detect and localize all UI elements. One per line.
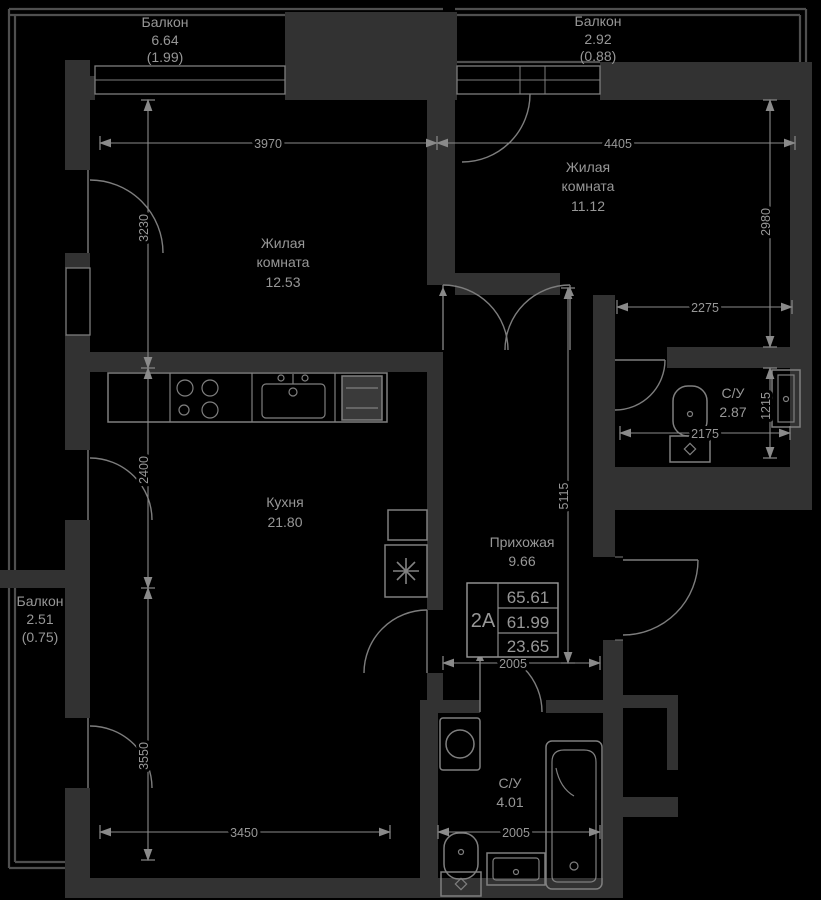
kitchen-sink-icon (262, 374, 325, 418)
svg-text:Кухня: Кухня (266, 494, 303, 510)
svg-text:Жилая: Жилая (261, 235, 305, 251)
dim-hall-width: 2005 (499, 657, 527, 671)
wall-segment (790, 62, 812, 510)
wall-segment (546, 700, 613, 713)
window-room1-left (66, 268, 90, 335)
svg-text:комната: комната (257, 254, 310, 270)
svg-text:Балкон: Балкон (575, 13, 622, 29)
label-room2: Жилая комната 11.12 (562, 159, 615, 214)
label-kitchen: Кухня 21.80 (266, 494, 303, 530)
svg-text:2.51: 2.51 (26, 611, 53, 627)
unit-stamp: 2А 65.61 61.99 23.65 (467, 583, 558, 657)
svg-text:комната: комната (562, 178, 615, 194)
dim-room2-ext-width: 2275 (691, 301, 719, 315)
floor-plan-canvas: 3970 4405 3230 2400 3550 2980 1215 2275 … (0, 0, 821, 900)
svg-text:21.80: 21.80 (267, 514, 302, 530)
total-area: 65.61 (507, 588, 550, 607)
wall-segment (623, 695, 678, 708)
stove-icon (177, 380, 218, 418)
dim-room2-height: 2980 (759, 208, 773, 236)
wall-segment (427, 96, 455, 285)
bathtub-icon (546, 741, 602, 889)
vent-asterisk-icon (393, 558, 419, 584)
svg-text:2.92: 2.92 (584, 31, 611, 47)
wall-segment (285, 12, 457, 100)
dim-bath-big-width: 2005 (502, 826, 530, 840)
svg-text:С/У: С/У (499, 775, 522, 791)
svg-text:Прихожая: Прихожая (490, 534, 555, 550)
svg-text:Жилая: Жилая (566, 159, 610, 175)
dim-kitchen-lower-height: 3550 (137, 742, 151, 770)
svg-text:(1.99): (1.99) (147, 49, 184, 65)
label-balcony-left: Балкон 2.51 (0.75) (17, 593, 64, 645)
door-bath-small (615, 360, 665, 410)
toilet-small-icon (670, 386, 710, 462)
wall-segment (65, 878, 623, 898)
label-hallway: Прихожая 9.66 (490, 534, 555, 569)
wall-segment (65, 335, 90, 450)
dim-bath-small-height: 1215 (759, 392, 773, 420)
svg-text:12.53: 12.53 (265, 274, 300, 290)
svg-text:С/У: С/У (722, 385, 745, 401)
svg-text:11.12: 11.12 (571, 198, 605, 214)
wall-segment (623, 797, 678, 817)
wall-segment (90, 352, 443, 372)
door-arc-balcony-room2 (462, 94, 530, 162)
vent-shaft (385, 545, 427, 597)
bathroom-sink-icon (487, 853, 545, 885)
svg-text:6.64: 6.64 (151, 32, 178, 48)
label-bath-big: С/У 4.01 (496, 775, 523, 810)
svg-text:2.87: 2.87 (719, 404, 746, 420)
wall-segment (0, 570, 90, 588)
niche-box (388, 510, 427, 540)
wall-segment (65, 60, 90, 170)
svg-text:(0.75): (0.75) (22, 629, 59, 645)
dim-kitchen-width: 3450 (230, 826, 258, 840)
fixtures (108, 370, 800, 896)
living-area: 23.65 (507, 637, 550, 656)
wall-segment (65, 588, 90, 718)
wall-segment (667, 708, 678, 770)
door-swing-arrow (439, 287, 447, 296)
dim-bath-small-width: 2175 (691, 427, 719, 441)
svg-text:Балкон: Балкон (17, 593, 64, 609)
wall-segment (593, 295, 615, 557)
wall-segment (427, 352, 443, 610)
wall-segment (600, 62, 790, 100)
wall-segment (65, 788, 90, 878)
label-room1: Жилая комната 12.53 (257, 235, 310, 290)
label-bath-small: С/У 2.87 (719, 385, 746, 420)
dim-room1-height: 3230 (137, 214, 151, 242)
label-balcony-top-right: Балкон 2.92 (0.88) (575, 13, 622, 64)
svg-text:4.01: 4.01 (496, 794, 523, 810)
door-kitchen-hallway (364, 610, 427, 673)
label-balcony-top-left: Балкон 6.64 (1.99) (142, 14, 189, 65)
dim-room2-width: 4405 (604, 137, 632, 151)
svg-text:9.66: 9.66 (508, 553, 535, 569)
wall-segment (65, 520, 90, 570)
wall-segment (603, 712, 623, 898)
wall-segment (65, 253, 90, 268)
door-entry (615, 557, 698, 640)
unit-number: 2А (471, 610, 496, 632)
fridge-icon (342, 376, 382, 420)
wall-segment (420, 700, 480, 713)
dim-hall-height: 5115 (557, 483, 571, 510)
floor-plan-page: 3970 4405 3230 2400 3550 2980 1215 2275 … (0, 0, 821, 900)
svg-text:(0.88): (0.88) (580, 48, 617, 64)
svg-text:Балкон: Балкон (142, 14, 189, 30)
dim-kitchen-height: 2400 (137, 456, 151, 484)
wall-segment (420, 712, 438, 878)
dim-room1-width: 3970 (254, 137, 282, 151)
wall-segment (667, 347, 790, 368)
washing-machine-icon (440, 718, 480, 770)
wall-segment (593, 467, 812, 510)
door-room1-balcony (88, 170, 163, 253)
area-no-balcony: 61.99 (507, 613, 550, 632)
